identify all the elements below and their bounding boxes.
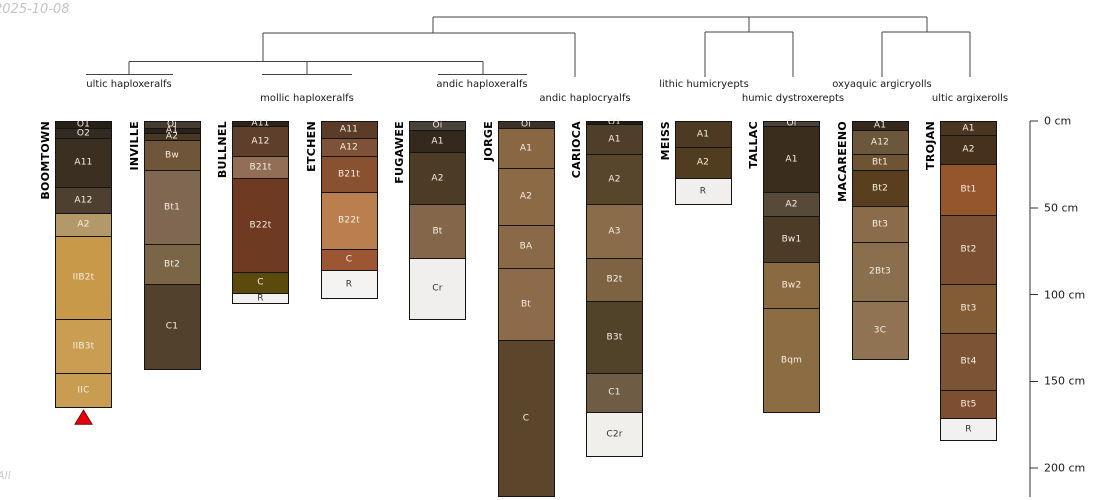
horizon-etchen-r: R	[321, 270, 378, 299]
profile-name-macareeno: MACAREENO	[836, 121, 849, 202]
watermark: All	[0, 469, 11, 482]
horizon-label: A1	[499, 144, 554, 153]
taxon-label-andic-haploxeralfs: andic haploxeralfs	[436, 79, 527, 90]
horizon-carioca-b3t: B3t	[586, 301, 643, 374]
horizon-boomtown-a12: A12	[55, 187, 112, 214]
horizon-jorge-c: C	[498, 340, 555, 497]
horizon-label: A12	[853, 138, 908, 147]
horizon-macareeno-2bt3: 2Bt3	[852, 242, 909, 302]
horizon-carioca-c1: C1	[586, 373, 643, 413]
horizon-label: A12	[56, 196, 111, 205]
horizon-etchen-a11: A11	[321, 121, 378, 139]
horizon-jorge-a2: A2	[498, 168, 555, 226]
horizon-label: 2Bt3	[853, 268, 908, 277]
horizon-trojan-a2: A2	[940, 135, 997, 165]
horizon-tallac-bw1: Bw1	[763, 216, 820, 263]
horizon-meiss-a1: A1	[675, 121, 732, 148]
horizon-trojan-a1: A1	[940, 121, 997, 136]
profile-name-etchen: ETCHEN	[305, 121, 318, 172]
horizon-label: A11	[56, 159, 111, 168]
profile-name-tallac: TALLAC	[747, 121, 760, 169]
horizon-trojan-bt1: Bt1	[940, 164, 997, 216]
horizon-inville-bt2: Bt2	[144, 244, 201, 285]
depth-tick-label: 100 cm	[1044, 288, 1085, 301]
horizon-meiss-a2: A2	[675, 147, 732, 179]
taxon-label-humic-dystroxerepts: humic dystroxerepts	[742, 93, 844, 104]
horizon-bullnel-r: R	[232, 293, 289, 304]
horizon-etchen-c: C	[321, 249, 378, 271]
horizon-inville-c1: C1	[144, 284, 201, 370]
taxon-label-lithic-humicryepts: lithic humicryepts	[659, 79, 749, 90]
horizon-jorge-a1: A1	[498, 128, 555, 169]
horizon-carioca-a3: A3	[586, 204, 643, 259]
horizon-label: Bt1	[941, 186, 996, 195]
horizon-macareeno-3c: 3C	[852, 301, 909, 360]
horizon-bullnel-c: C	[232, 272, 289, 294]
horizon-boomtown-iib2t: IIB2t	[55, 236, 112, 320]
horizon-label: Bt	[499, 300, 554, 309]
depth-tick-label: 0 cm	[1044, 115, 1071, 128]
horizon-label: B21t	[322, 170, 377, 179]
horizon-label: Bw1	[764, 235, 819, 244]
horizon-label: A1	[587, 135, 642, 144]
horizon-boomtown-a11: A11	[55, 138, 112, 188]
profile-name-meiss: MEISS	[659, 121, 672, 160]
horizon-label: Bt5	[941, 400, 996, 409]
depth-tick-label: 150 cm	[1044, 375, 1085, 388]
horizon-label: IIB2t	[56, 274, 111, 283]
horizon-label: C2r	[587, 430, 642, 439]
horizon-inville-bw: Bw	[144, 140, 201, 171]
horizon-label: Bt2	[853, 184, 908, 193]
horizon-trojan-bt2: Bt2	[940, 215, 997, 285]
soil-profile-figure: 2025-10-08 ultic haploxeralfsmollic hapl…	[0, 0, 1100, 500]
horizon-label: C	[233, 279, 288, 288]
horizon-fugawee-a1: A1	[409, 130, 466, 153]
taxon-label-ultic-haploxeralfs: ultic haploxeralfs	[86, 79, 171, 90]
horizon-label: A1	[676, 130, 731, 139]
date-annotation: 2025-10-08	[0, 2, 70, 17]
profile-name-fugawee: FUGAWEE	[393, 121, 406, 184]
horizon-etchen-a12: A12	[321, 138, 378, 157]
depth-tick-label: 200 cm	[1044, 462, 1085, 475]
horizon-label: Bt3	[853, 220, 908, 229]
taxon-label-oxyaquic-argicryolls: oxyaquic argicryolls	[832, 79, 932, 90]
horizon-label: Bqm	[764, 356, 819, 365]
horizon-carioca-b2t: B2t	[586, 258, 643, 302]
horizon-label: R	[676, 187, 731, 196]
horizon-label: Bt4	[941, 358, 996, 367]
horizon-label: R	[322, 280, 377, 289]
horizon-label: Bw	[145, 151, 200, 160]
horizon-label: A2	[676, 159, 731, 168]
horizon-label: Bt2	[145, 260, 200, 269]
taxon-label-mollic-haploxeralfs: mollic haploxeralfs	[260, 93, 354, 104]
horizon-label: 3C	[853, 326, 908, 335]
horizon-label: R	[233, 294, 288, 303]
horizon-trojan-r: R	[940, 418, 997, 441]
horizon-macareeno-bt1: Bt1	[852, 154, 909, 171]
horizon-carioca-c2r: C2r	[586, 412, 643, 457]
profile-name-carioca: CARIOCA	[570, 121, 583, 178]
horizon-label: A2	[499, 193, 554, 202]
horizon-label: IIC	[56, 386, 111, 395]
horizon-label: Bt1	[145, 203, 200, 212]
horizon-label: O2	[56, 129, 111, 138]
horizon-macareeno-bt3: Bt3	[852, 206, 909, 243]
horizon-label: Bt3	[941, 305, 996, 314]
profile-name-boomtown: BOOMTOWN	[39, 121, 52, 200]
horizon-label: A2	[587, 175, 642, 184]
profile-name-jorge: JORGE	[482, 121, 495, 161]
horizon-label: A2	[764, 200, 819, 209]
horizon-label: B3t	[587, 333, 642, 342]
horizon-etchen-b22t: B22t	[321, 192, 378, 250]
horizon-jorge-ba: BA	[498, 225, 555, 269]
horizon-macareeno-a12: A12	[852, 130, 909, 155]
horizon-meiss-r: R	[675, 178, 732, 205]
horizon-tallac-a2: A2	[763, 192, 820, 217]
horizon-label: B2t	[587, 276, 642, 285]
taxon-label-andic-haplocryalfs: andic haplocryalfs	[539, 93, 630, 104]
horizon-label: A1	[764, 155, 819, 164]
horizon-tallac-a1: A1	[763, 126, 820, 193]
horizon-boomtown-iib3t: IIB3t	[55, 319, 112, 374]
horizon-fugawee-bt: Bt	[409, 204, 466, 259]
horizon-trojan-bt3: Bt3	[940, 284, 997, 334]
horizon-label: A2	[56, 221, 111, 230]
horizon-tallac-bqm: Bqm	[763, 308, 820, 413]
profile-name-bullnel: BULLNEL	[216, 121, 229, 178]
horizon-label: BA	[499, 243, 554, 252]
horizon-label: A12	[233, 137, 288, 146]
taxon-label-ultic-argixerolls: ultic argixerolls	[932, 93, 1008, 104]
horizon-label: C	[322, 256, 377, 265]
horizon-bullnel-b22t: B22t	[232, 178, 289, 273]
horizon-label: Bt1	[853, 158, 908, 167]
depth-tick-label: 50 cm	[1044, 201, 1078, 214]
horizon-label: B22t	[322, 217, 377, 226]
horizon-fugawee-cr: Cr	[409, 258, 466, 320]
horizon-trojan-bt5: Bt5	[940, 390, 997, 419]
horizon-label: C1	[145, 323, 200, 332]
profile-name-trojan: TROJAN	[924, 121, 937, 170]
horizon-inville-bt1: Bt1	[144, 170, 201, 245]
horizon-carioca-a2: A2	[586, 154, 643, 205]
horizon-label: B21t	[233, 163, 288, 172]
horizon-jorge-bt: Bt	[498, 268, 555, 341]
horizon-label: Bw2	[764, 281, 819, 290]
horizon-label: A1	[410, 137, 465, 146]
horizon-carioca-a1: A1	[586, 124, 643, 155]
horizon-label: A1	[941, 124, 996, 133]
horizon-label: C1	[587, 389, 642, 398]
horizon-bullnel-a12: A12	[232, 126, 289, 157]
horizon-boomtown-iic: IIC	[55, 373, 112, 408]
horizon-macareeno-bt2: Bt2	[852, 170, 909, 207]
horizon-label: A2	[941, 146, 996, 155]
cultivation-marker-triangle	[75, 410, 92, 424]
horizon-label: A11	[322, 126, 377, 135]
horizon-tallac-bw2: Bw2	[763, 262, 820, 309]
horizon-fugawee-a2: A2	[409, 152, 466, 205]
horizon-label: IIB3t	[56, 342, 111, 351]
horizon-label: C	[499, 414, 554, 423]
horizon-label: A3	[587, 227, 642, 236]
horizon-boomtown-a2: A2	[55, 213, 112, 237]
horizon-label: A2	[410, 174, 465, 183]
horizon-label: Bt2	[941, 246, 996, 255]
horizon-etchen-b21t: B21t	[321, 156, 378, 193]
horizon-trojan-bt4: Bt4	[940, 333, 997, 391]
horizon-label: B22t	[233, 221, 288, 230]
horizon-label: Bt	[410, 227, 465, 236]
profile-name-inville: INVILLE	[128, 121, 141, 171]
horizon-label: R	[941, 425, 996, 434]
horizon-label: Cr	[410, 285, 465, 294]
horizon-label: A12	[322, 143, 377, 152]
horizon-bullnel-b21t: B21t	[232, 156, 289, 179]
